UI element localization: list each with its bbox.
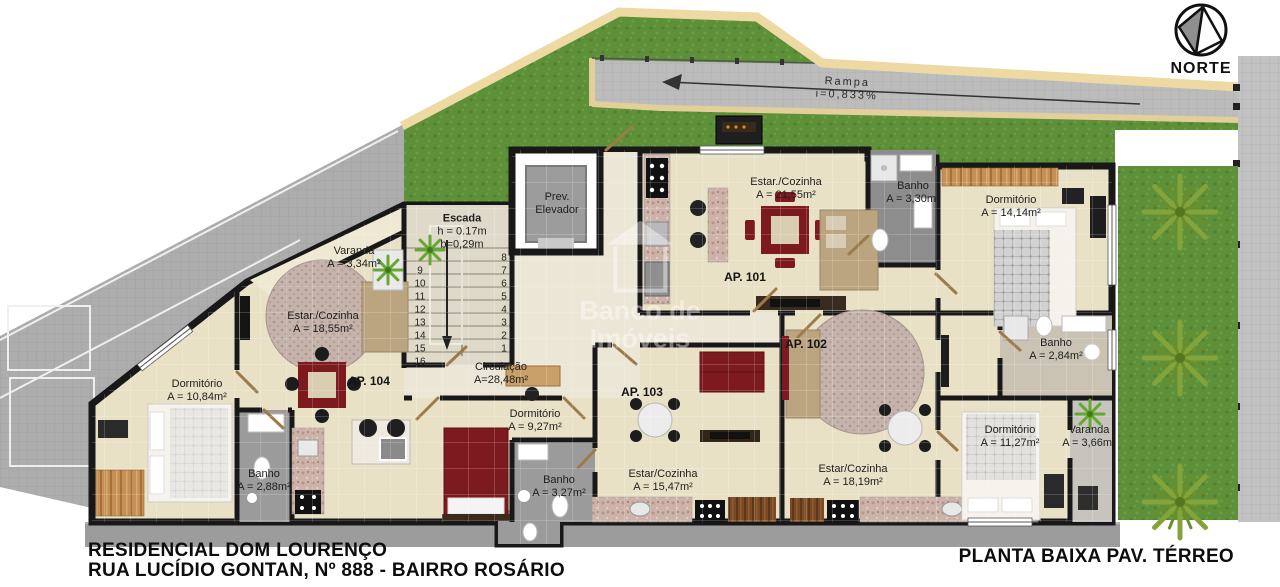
stair-number: 5 <box>501 292 507 303</box>
palm-tree <box>1144 322 1216 394</box>
project-name: RESIDENCIAL DOM LOURENÇO <box>88 541 565 561</box>
palm-tree <box>1144 176 1216 248</box>
room-label-ap103-bedroom: Dormitório A = 9,27m² <box>508 408 562 434</box>
compass-label: NORTE <box>1171 60 1232 78</box>
room-label-ap104-bath: Banho A = 2,88m² <box>237 468 291 494</box>
site-grass-right-strip <box>1118 166 1238 538</box>
floor-plan-page: NORTE Rampa i=0,833% Prev. Elevador Esca… <box>0 0 1280 587</box>
stair-number: 7 <box>501 266 507 277</box>
stair-number: 16 <box>414 357 425 368</box>
room-label-ap102-bedroom: Dormitório A = 11,27m² <box>981 424 1040 450</box>
room-label-ap104-living: Estar./Cozinha A = 18,55m² <box>287 310 359 336</box>
room-label-ap101-living: Estar./Cozinha A = 21,55m² <box>750 176 822 202</box>
bbq-grill <box>716 116 762 144</box>
room-label-ap103-living: Estar/Cozinha A = 15,47m² <box>628 468 697 494</box>
unit-label-ap104: AP. 104 <box>348 374 390 388</box>
stair-number: 10 <box>414 279 425 290</box>
palm-tree <box>1144 466 1216 538</box>
stair-number: 8 <box>501 253 507 264</box>
stair-number: 9 <box>417 266 423 277</box>
unit-label-ap103: AP. 103 <box>621 385 663 399</box>
room-label-stairs: Escada h = 0.17m b=0,29m <box>437 213 486 252</box>
stair-number: 6 <box>501 279 507 290</box>
room-label-ap102-living: Estar/Cozinha A = 18,19m² <box>818 463 887 489</box>
stair-number: 4 <box>501 305 507 316</box>
site-right-sidewalk <box>1233 56 1280 522</box>
room-label-ap101-bedroom: Dormitório A = 14,14m² <box>981 194 1041 220</box>
unit-label-ap101: AP. 101 <box>724 270 766 284</box>
room-label-circulation: Circulação A=28,48m² <box>474 361 528 387</box>
stair-number: 2 <box>501 331 507 342</box>
unit-label-ap102: AP. 102 <box>785 337 827 351</box>
stair-number: 14 <box>414 331 425 342</box>
floor-plan-drawing <box>0 0 1280 587</box>
plan-title: PLANTA BAIXA PAV. TÉRREO <box>959 546 1234 568</box>
stair-number: 15 <box>414 344 425 355</box>
project-address: RUA LUCÍDIO GONTAN, Nº 888 - BAIRRO ROSÁ… <box>88 561 565 581</box>
stair-number: 3 <box>501 318 507 329</box>
room-label-ap102-bath: Banho A = 2,84m² <box>1029 337 1083 363</box>
ramp-label: Rampa i=0,833% <box>815 75 878 104</box>
stair-number: 11 <box>415 292 425 303</box>
stair-number: 1 <box>501 344 507 355</box>
stair-number: 12 <box>414 305 425 316</box>
north-compass-icon <box>1176 5 1226 55</box>
ramp-slope: i=0,833% <box>815 88 878 104</box>
footer-project-info: RESIDENCIAL DOM LOURENÇO RUA LUCÍDIO GON… <box>88 541 565 580</box>
room-label-elevator: Prev. Elevador <box>535 191 578 217</box>
room-label-ap102-balcony: Varanda A = 3,66m² <box>1062 424 1116 450</box>
room-label-ap101-bath: Banho A = 3,30m² <box>886 180 940 206</box>
stair-number: 13 <box>414 318 425 329</box>
room-label-ap103-bath: Banho A = 3,27m² <box>532 474 586 500</box>
room-label-ap104-balcony: Varanda A = 3,34m² <box>327 245 381 271</box>
room-label-ap104-bedroom: Dormitório A = 10,84m² <box>167 378 227 404</box>
